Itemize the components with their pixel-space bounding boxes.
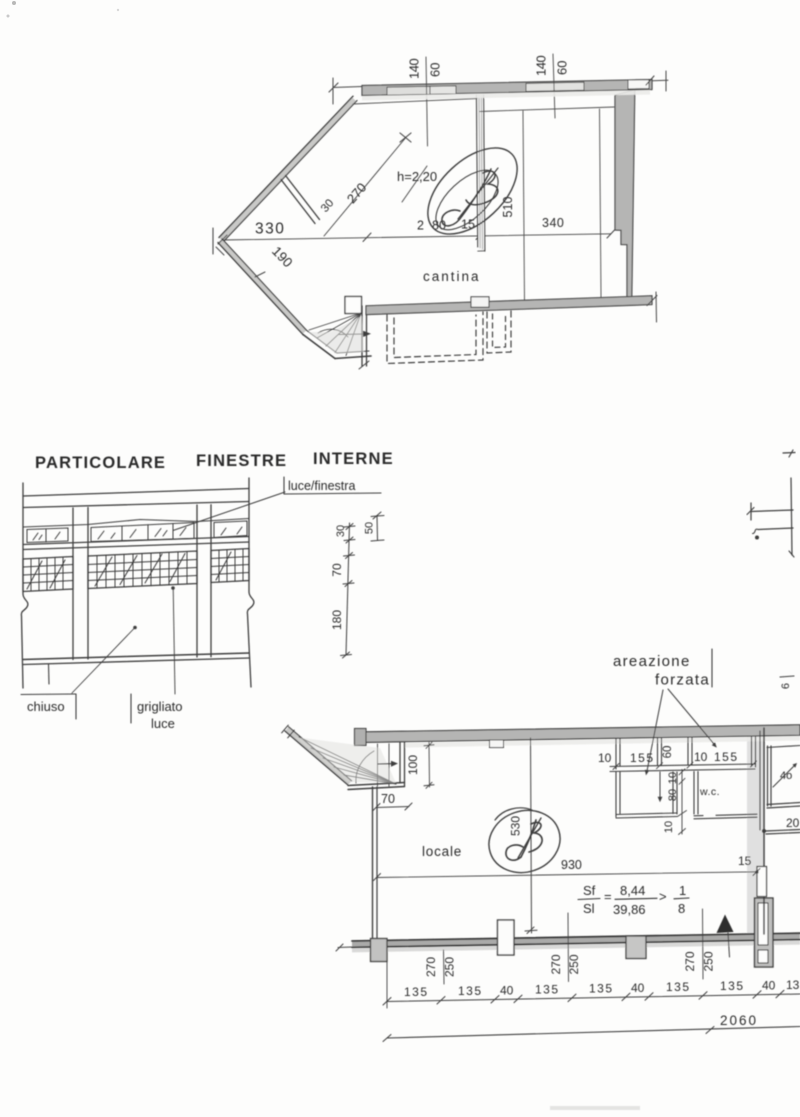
svg-text:155: 155: [714, 750, 739, 764]
svg-text:250: 250: [443, 957, 457, 977]
svg-text:180: 180: [330, 610, 344, 630]
svg-text:h=2,20: h=2,20: [397, 169, 437, 184]
svg-text:135: 135: [458, 984, 483, 998]
svg-text:135: 135: [666, 980, 691, 994]
svg-text:140: 140: [406, 59, 421, 79]
svg-text:50: 50: [364, 522, 376, 534]
svg-text:70: 70: [381, 792, 395, 806]
svg-text:250: 250: [567, 954, 581, 974]
svg-text:8: 8: [678, 901, 685, 916]
svg-text:340: 340: [542, 216, 564, 230]
svg-text:530: 530: [509, 816, 523, 836]
svg-text:30: 30: [335, 525, 347, 537]
svg-text:10: 10: [667, 772, 679, 784]
svg-text:13: 13: [786, 978, 800, 992]
svg-text:luce/finestra: luce/finestra: [288, 479, 355, 493]
svg-text:135: 135: [535, 983, 560, 997]
svg-text:930: 930: [561, 858, 582, 872]
svg-text:2060: 2060: [720, 1013, 758, 1028]
svg-text:40: 40: [631, 981, 645, 995]
svg-text:INTERNE: INTERNE: [313, 450, 394, 468]
svg-text:510: 510: [501, 197, 515, 218]
svg-text:chiuso: chiuso: [27, 699, 65, 714]
svg-text:w.c.: w.c.: [699, 786, 720, 798]
svg-text:60: 60: [427, 63, 442, 77]
svg-text:4o: 4o: [780, 770, 792, 782]
svg-text:135: 135: [589, 982, 614, 996]
svg-text:2: 2: [417, 219, 424, 233]
svg-text:Sf: Sf: [583, 883, 596, 898]
svg-text:10: 10: [694, 750, 708, 764]
svg-text:8,44: 8,44: [620, 883, 645, 898]
svg-text:135: 135: [404, 985, 429, 999]
svg-text:270: 270: [549, 954, 563, 974]
svg-text:270: 270: [683, 951, 697, 971]
svg-text:40: 40: [762, 979, 776, 993]
svg-text:60: 60: [662, 746, 674, 759]
svg-text:140: 140: [533, 56, 548, 76]
svg-text:20: 20: [786, 816, 800, 830]
svg-text:80: 80: [667, 789, 679, 801]
svg-text:cantina: cantina: [423, 269, 481, 284]
svg-text:135: 135: [720, 979, 745, 993]
svg-text:155: 155: [630, 751, 655, 765]
svg-text:locale: locale: [422, 844, 462, 859]
svg-text:39,86: 39,86: [613, 902, 646, 917]
svg-text:15: 15: [738, 854, 752, 868]
svg-text:PARTICOLARE: PARTICOLARE: [35, 454, 166, 472]
svg-text:270: 270: [424, 957, 438, 977]
svg-text:70: 70: [330, 563, 344, 577]
svg-text:10: 10: [598, 751, 612, 765]
svg-text:60: 60: [554, 61, 569, 75]
svg-text:40: 40: [500, 983, 514, 997]
svg-text:areazione: areazione: [613, 653, 691, 670]
svg-text:330: 330: [255, 221, 285, 238]
svg-text:grigliato: grigliato: [137, 699, 183, 714]
svg-text:Sl: Sl: [583, 901, 595, 916]
svg-text:luce: luce: [151, 716, 175, 731]
svg-text:100: 100: [406, 755, 420, 775]
svg-text:forzata: forzata: [655, 672, 710, 689]
svg-text:FINESTRE: FINESTRE: [196, 452, 287, 470]
svg-text:=: =: [604, 889, 612, 904]
svg-text:6: 6: [780, 683, 792, 689]
svg-text:10: 10: [663, 821, 675, 833]
svg-text:250: 250: [702, 951, 716, 971]
svg-text:>: >: [659, 889, 667, 904]
svg-text:1: 1: [679, 883, 686, 898]
